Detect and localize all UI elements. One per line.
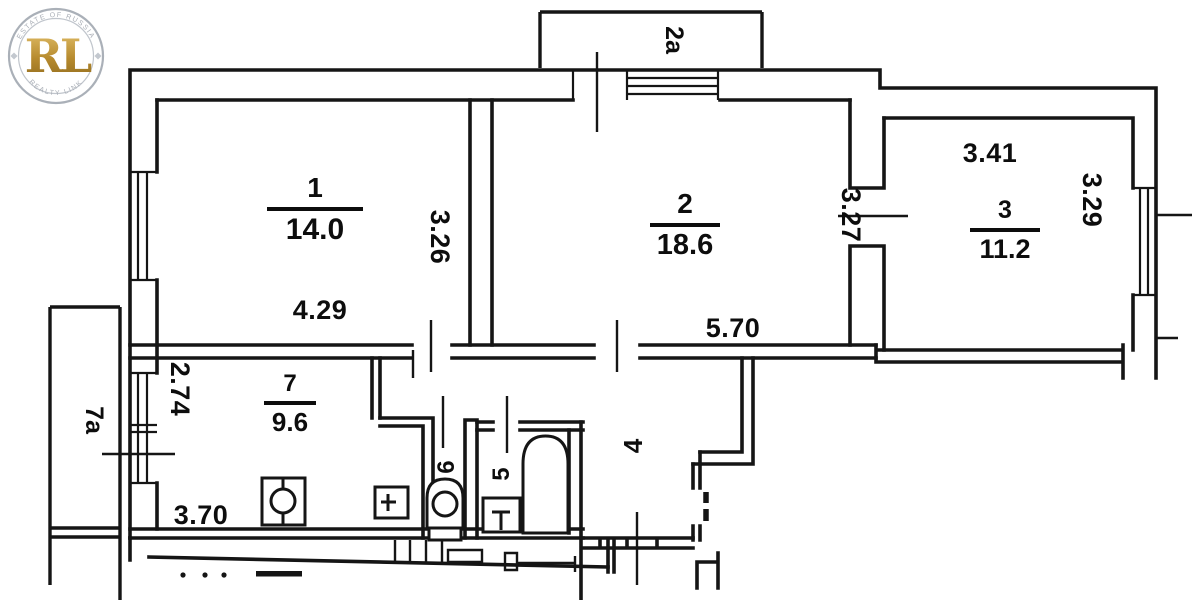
room-3-fraction-bar [970, 228, 1040, 232]
dim-room3-width: 3.41 [940, 139, 1040, 167]
room-1-fraction-bar [267, 207, 363, 211]
room-1-area: 14.0 [286, 215, 344, 245]
dim-room3-depth: 3.29 [1077, 158, 1107, 242]
balcony-top-label: 2a [659, 20, 689, 60]
balcony-left-label: 7a [79, 400, 109, 440]
room-2-fraction-bar [650, 223, 720, 227]
dim-room7-depth: 2.74 [165, 347, 195, 431]
room-2-number: 2 [677, 190, 693, 218]
dim-room2-width: 5.70 [683, 314, 783, 342]
room-7-area: 9.6 [272, 409, 308, 435]
room-5-number: 5 [487, 459, 517, 489]
window-room3 [1133, 188, 1156, 295]
toilet-symbol [427, 479, 463, 540]
room-2-area: 18.6 [657, 231, 713, 260]
dim-room7-width: 3.70 [151, 501, 251, 529]
fixtures [262, 436, 568, 540]
room-3-area: 11.2 [979, 236, 1030, 263]
dim-room1-width: 4.29 [270, 296, 370, 324]
bathtub-symbol [523, 436, 568, 533]
dim-room1-depth: 3.26 [425, 195, 455, 279]
watermark-badge: ESTATE OF RUSSIA REALTY LINK RL [0, 0, 112, 112]
floor-plan: 1 14.0 4.29 3.26 2 18.6 5.70 3.27 3.41 3… [0, 0, 1192, 600]
room-2-label: 2 18.6 [650, 190, 720, 260]
room-3-number: 3 [998, 198, 1012, 223]
room-1-label: 1 14.0 [267, 174, 363, 245]
dim-room2-depth: 3.27 [836, 173, 866, 257]
room-3-label: 3 11.2 [970, 198, 1040, 263]
room-7-fraction-bar [264, 401, 316, 405]
room-6-number: 6 [432, 452, 462, 482]
balcony-top-outline [540, 12, 762, 68]
window-room1 [130, 172, 157, 280]
window-balcony-door [573, 70, 718, 100]
window-kitchen [130, 373, 157, 483]
stove-symbol [262, 478, 305, 525]
washbasin-symbol [483, 498, 520, 532]
dashed-cutoff-marks [180, 571, 302, 578]
room-1-number: 1 [307, 174, 323, 202]
watermark-initials: RL [25, 29, 92, 83]
room-4-number: 4 [618, 431, 648, 461]
kitchen-sink-symbol [375, 487, 408, 518]
room-7-number: 7 [283, 372, 296, 396]
room-7-label: 7 9.6 [264, 372, 316, 435]
